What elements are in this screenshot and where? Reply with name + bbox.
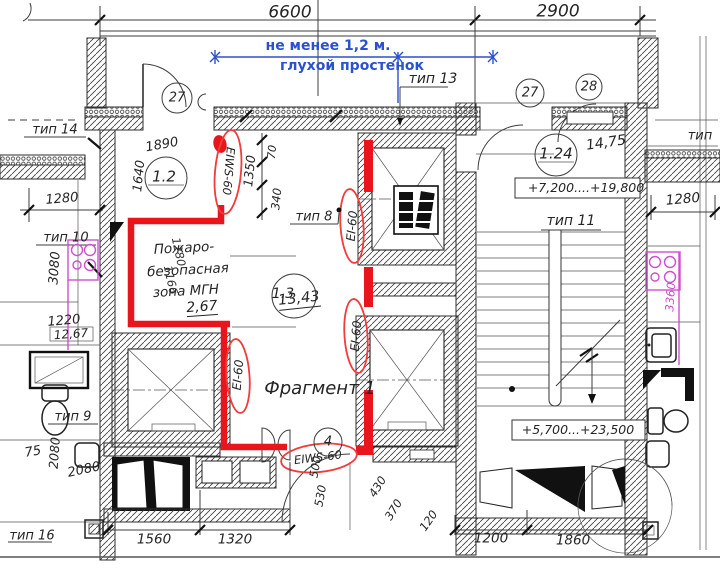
dim-3360: 3360 bbox=[664, 282, 678, 312]
elevator-shaft-left bbox=[112, 333, 230, 447]
dim-75: 75 bbox=[24, 444, 43, 460]
sink-icon-right bbox=[646, 328, 676, 362]
detail-mark-27-left: 27 bbox=[169, 92, 186, 105]
dim-1280-right: 1280 bbox=[665, 192, 700, 208]
washing-machine-icon bbox=[30, 352, 88, 388]
fire-rating-wall-lower: EI-60 bbox=[349, 320, 364, 352]
toilet-icon-right bbox=[648, 408, 688, 434]
type-label-11: тип 11 bbox=[547, 214, 596, 228]
type-label-right: тип bbox=[688, 130, 713, 143]
elevation-lower: +5,700...+23,500 bbox=[522, 424, 634, 437]
dim-1560: 1560 bbox=[137, 533, 171, 547]
fire-rating-wall-upper: EI-60 bbox=[345, 210, 360, 242]
room-tag-right: 1.24 bbox=[539, 147, 572, 162]
shaft-divider-wall bbox=[370, 283, 456, 296]
blue-note-line1: не менее 1,2 м. bbox=[266, 39, 391, 53]
blue-note-line2: глухой простенок bbox=[280, 59, 424, 73]
type-label-9: тип 9 bbox=[55, 411, 92, 424]
dim-1200: 1200 bbox=[474, 532, 508, 546]
dim-1220: 1220 bbox=[47, 313, 81, 329]
dim-2080-vertical: 2080 bbox=[48, 437, 63, 470]
dim-1320: 1320 bbox=[218, 533, 252, 547]
fire-rating-corridor: EI-60 bbox=[231, 359, 246, 391]
type-label-16: тип 16 bbox=[9, 530, 54, 543]
dim-span-left: 6600 bbox=[268, 5, 311, 22]
fragment-label: Фрагмент 1 bbox=[264, 380, 376, 398]
room-tag-left: 1.2 bbox=[152, 170, 176, 185]
dim-span-right: 2900 bbox=[536, 4, 579, 21]
fire-rating-door-top: EIWS-60 bbox=[220, 147, 236, 196]
elevation-upper: +7,200....+19,800 bbox=[528, 182, 644, 195]
type-label-13: тип 13 bbox=[409, 72, 458, 86]
dim-1280-left: 1280 bbox=[45, 191, 79, 207]
type-label-14: тип 14 bbox=[32, 124, 77, 137]
dim-70: 70 bbox=[266, 144, 278, 159]
floorplan-drawing: 6600 2900 не менее 1,2 м. глухой простен… bbox=[0, 0, 720, 576]
dim-1350: 1350 bbox=[242, 155, 258, 188]
dim-1860: 1860 bbox=[556, 534, 590, 548]
detail-mark-4: 4 bbox=[324, 436, 332, 449]
dim-3080: 3080 bbox=[47, 251, 62, 285]
floorplan-linework bbox=[0, 0, 720, 576]
sink-icon-bottom bbox=[646, 441, 669, 467]
small-door-leaf bbox=[198, 94, 206, 110]
type-label-8: тип 8 bbox=[296, 211, 333, 224]
mgn-zone-line3: зона МГН bbox=[153, 284, 220, 301]
area-mgn-zone: 2,67 bbox=[186, 299, 218, 317]
dim-340: 340 bbox=[270, 187, 284, 210]
detail-mark-28: 28 bbox=[581, 81, 598, 94]
partition-dark-right bbox=[643, 368, 694, 401]
dim-1640: 1640 bbox=[131, 160, 147, 193]
detail-mark-27-right: 27 bbox=[522, 87, 539, 100]
lift-machine-icon bbox=[394, 186, 438, 234]
type-label-10: тип 10 bbox=[43, 232, 88, 245]
